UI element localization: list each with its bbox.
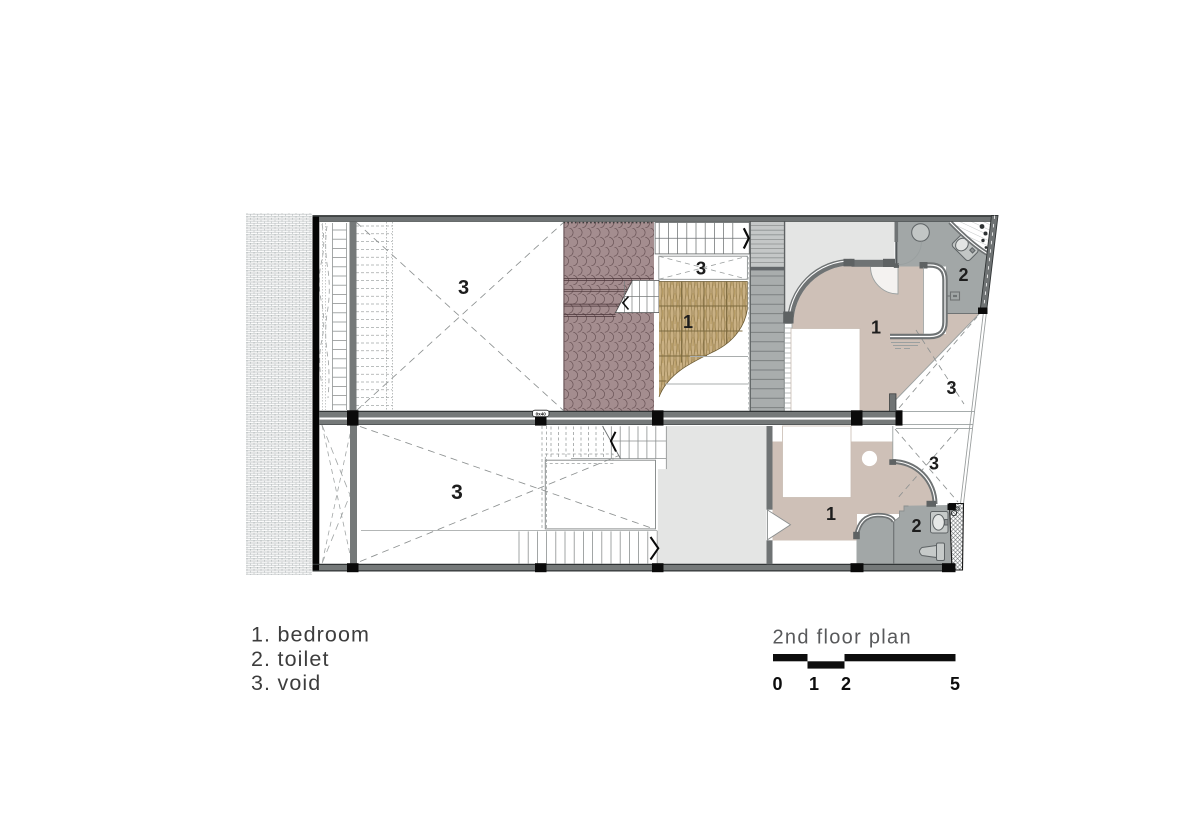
svg-text:3: 3 [946,378,956,398]
svg-text:1: 1 [871,318,881,338]
svg-text:2nd floor plan: 2nd floor plan [773,627,912,649]
svg-text:3.: 3. [251,671,271,695]
svg-text:toilet: toilet [278,647,330,671]
svg-text:3: 3 [929,454,939,474]
svg-text:1: 1 [826,504,836,524]
svg-text:1: 1 [809,674,819,694]
svg-text:0: 0 [772,674,782,694]
svg-text:2: 2 [911,516,921,536]
svg-text:3: 3 [696,258,706,279]
svg-text:bedroom: bedroom [278,623,371,647]
svg-text:0x40: 0x40 [536,411,547,416]
svg-text:2: 2 [958,265,968,285]
svg-text:3: 3 [458,277,469,299]
svg-text:2.: 2. [251,647,271,671]
svg-text:3: 3 [451,481,463,504]
svg-text:5: 5 [950,674,960,694]
svg-text:void: void [278,671,322,695]
svg-text:1: 1 [683,312,693,332]
svg-text:1.: 1. [251,623,271,647]
svg-text:2: 2 [841,674,851,694]
